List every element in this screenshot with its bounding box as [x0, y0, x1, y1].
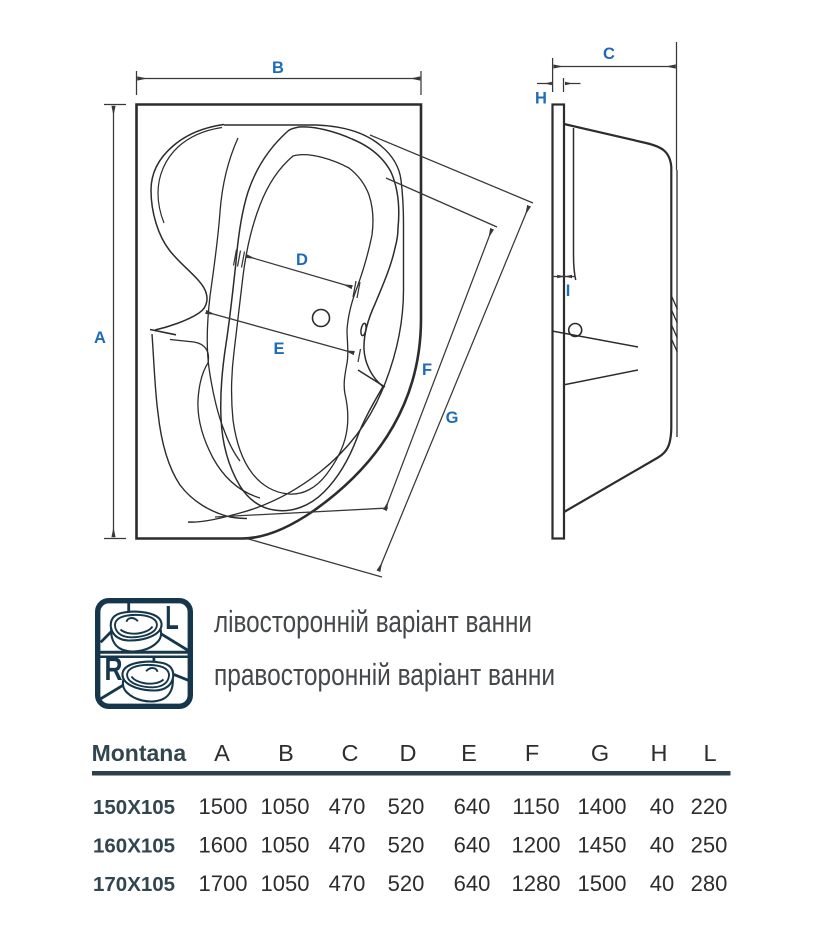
svg-text:правосторонній варіант ванни: правосторонній варіант ванни	[214, 657, 555, 692]
svg-text:520: 520	[388, 833, 425, 858]
svg-text:470: 470	[329, 794, 366, 819]
svg-text:B: B	[272, 59, 284, 77]
svg-text:A: A	[94, 329, 106, 347]
svg-text:640: 640	[454, 871, 491, 896]
svg-text:Montana: Montana	[92, 740, 187, 766]
svg-text:A: A	[214, 740, 230, 766]
svg-text:F: F	[525, 740, 539, 766]
svg-text:160X105: 160X105	[93, 835, 175, 858]
svg-text:1600: 1600	[199, 833, 248, 858]
svg-text:1450: 1450	[578, 833, 627, 858]
svg-text:40: 40	[650, 833, 674, 858]
svg-text:150X105: 150X105	[93, 796, 175, 819]
svg-text:L: L	[165, 599, 179, 636]
svg-text:640: 640	[454, 794, 491, 819]
svg-text:520: 520	[388, 871, 425, 896]
svg-text:F: F	[422, 361, 432, 379]
svg-text:470: 470	[329, 833, 366, 858]
svg-text:1050: 1050	[261, 871, 310, 896]
svg-text:E: E	[273, 340, 284, 358]
svg-text:H: H	[651, 740, 668, 766]
svg-text:D: D	[400, 740, 417, 766]
svg-text:1500: 1500	[578, 871, 627, 896]
svg-text:1500: 1500	[199, 794, 248, 819]
svg-text:B: B	[278, 740, 294, 766]
svg-text:D: D	[296, 251, 308, 269]
svg-text:E: E	[461, 740, 477, 766]
svg-text:40: 40	[650, 794, 674, 819]
svg-text:220: 220	[691, 794, 728, 819]
svg-text:1700: 1700	[199, 871, 248, 896]
svg-text:640: 640	[454, 833, 491, 858]
svg-text:G: G	[591, 740, 609, 766]
svg-text:250: 250	[691, 833, 728, 858]
svg-text:G: G	[446, 409, 459, 427]
svg-text:1050: 1050	[261, 794, 310, 819]
svg-text:1200: 1200	[512, 833, 561, 858]
svg-text:I: I	[566, 282, 571, 300]
svg-text:470: 470	[329, 871, 366, 896]
svg-text:1150: 1150	[512, 794, 559, 819]
svg-text:1050: 1050	[261, 833, 310, 858]
svg-text:520: 520	[388, 794, 425, 819]
svg-text:280: 280	[691, 871, 728, 896]
svg-text:170X105: 170X105	[93, 873, 175, 896]
svg-text:1400: 1400	[578, 794, 627, 819]
svg-text:C: C	[603, 45, 615, 63]
svg-text:H: H	[535, 90, 547, 108]
svg-text:R: R	[105, 651, 123, 687]
svg-text:40: 40	[650, 871, 674, 896]
svg-text:1280: 1280	[512, 871, 561, 896]
svg-text:лівосторонній варіант ванни: лівосторонній варіант ванни	[214, 604, 532, 639]
svg-text:C: C	[342, 740, 359, 766]
svg-text:L: L	[703, 740, 716, 766]
